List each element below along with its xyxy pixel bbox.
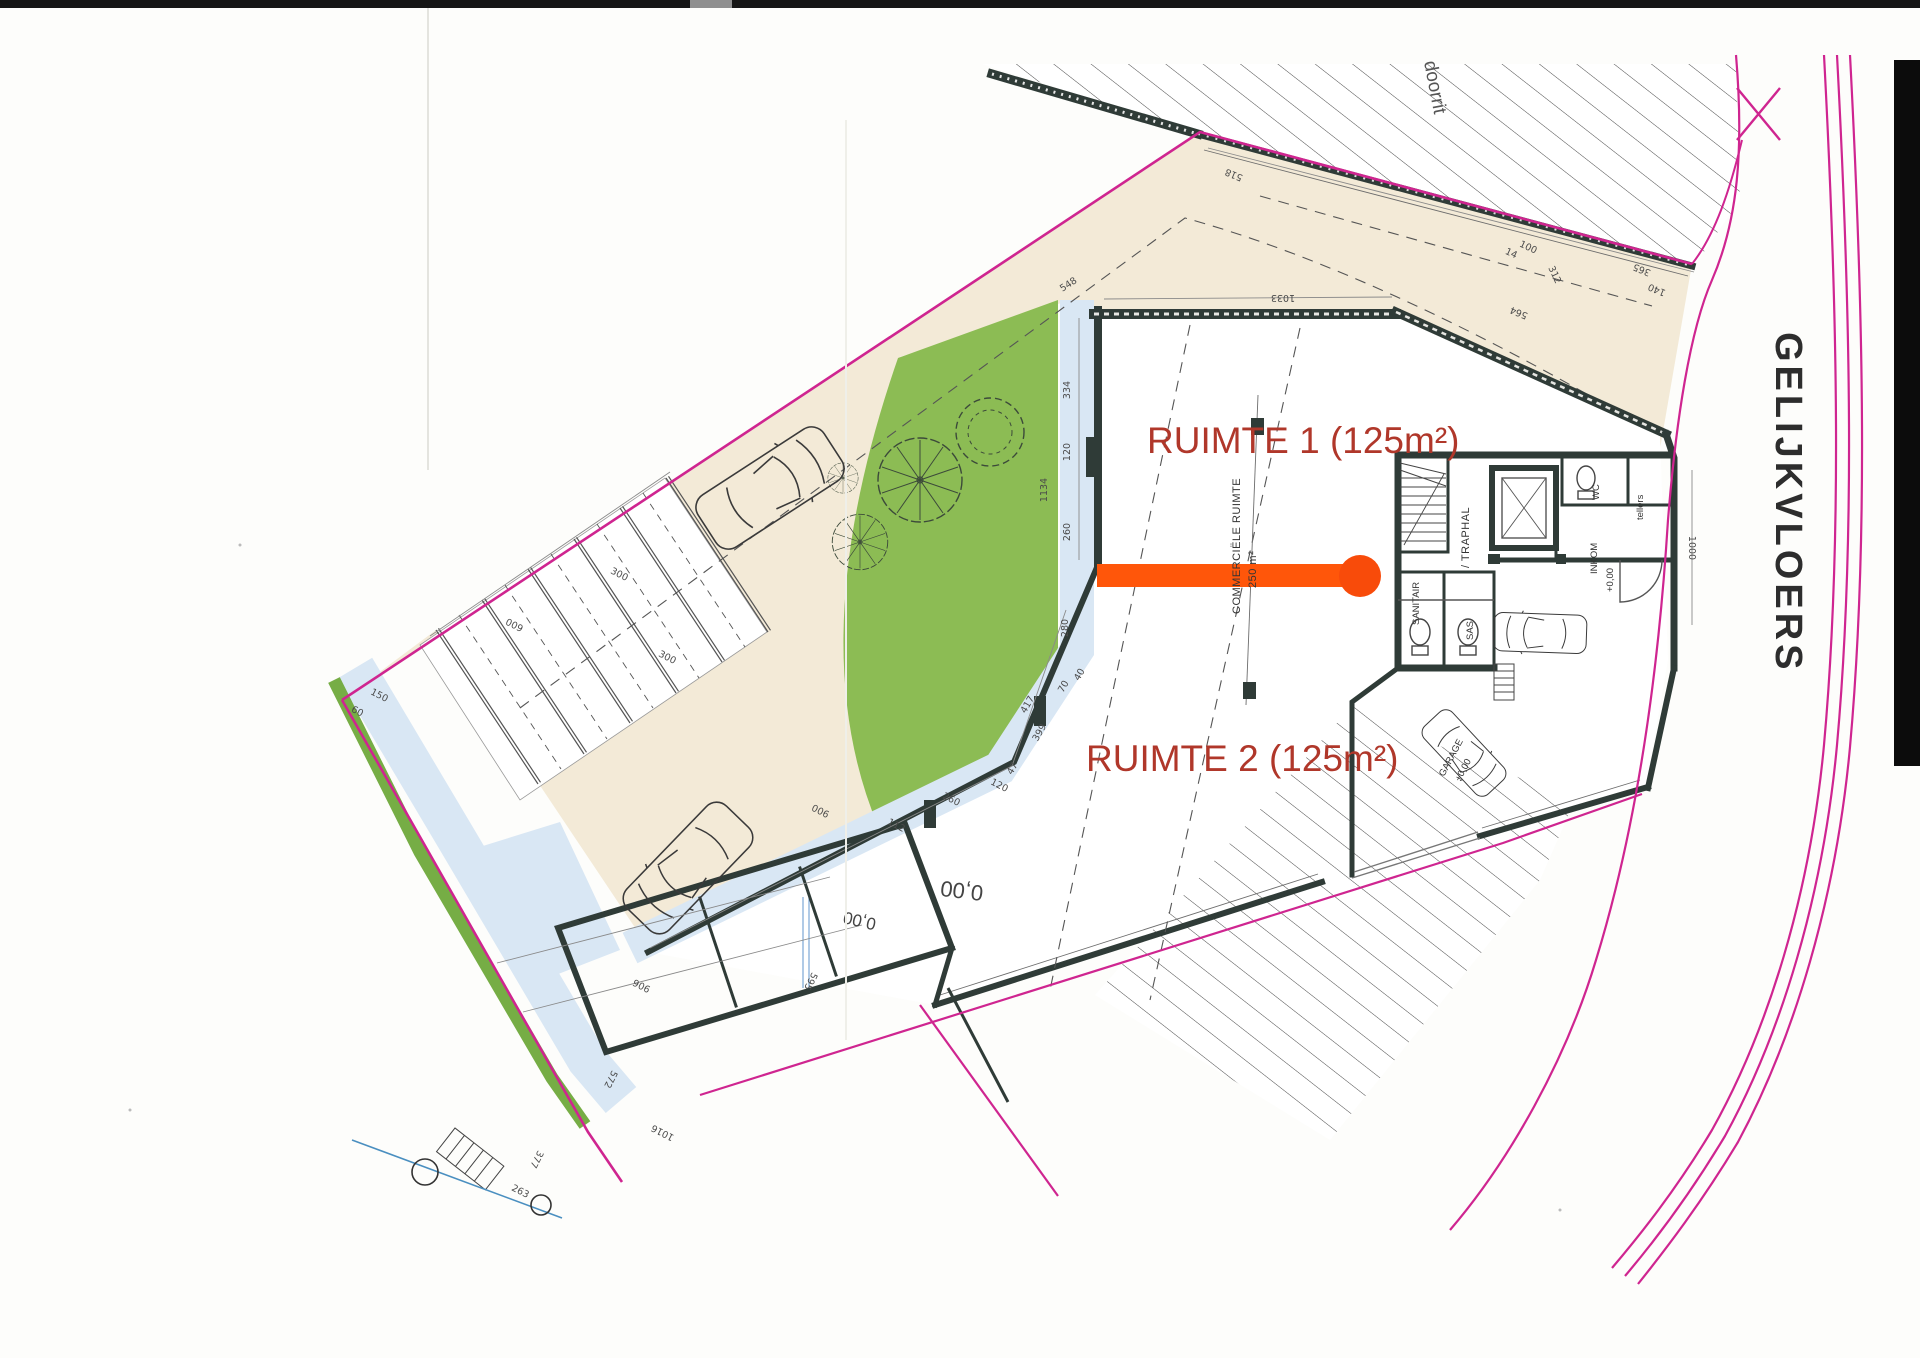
site-ground-fills — [334, 132, 1692, 1125]
dim-label: 334 — [1062, 381, 1073, 399]
label-inkom-level: +0,00 — [1605, 568, 1616, 592]
dim-label: 280 — [1060, 619, 1071, 637]
dim-label: 377 — [527, 1149, 545, 1170]
page-title: GELIJKVLOERS — [1767, 332, 1809, 674]
label-sanitair: SANITAIR — [1411, 582, 1422, 625]
dim-label: 260 — [1062, 523, 1073, 541]
label-sas: SAS — [1465, 621, 1476, 640]
survey-point-icon — [531, 1195, 551, 1215]
survey-point-icon — [412, 1159, 438, 1185]
door-block — [1086, 437, 1102, 477]
dim-label: 1033 — [1271, 292, 1295, 303]
label-inkom: INKOM — [1589, 543, 1600, 574]
orange-divider-dot — [1339, 555, 1381, 597]
dim-label: 1016 — [650, 1122, 677, 1143]
label-tellers: tellers — [1635, 494, 1646, 520]
scanned-floor-plan-sheet: 1033 548 518 100 14 312 564 365 140 1000… — [0, 0, 1920, 1358]
label-ruimte-1: RUIMTE 1 (125m²) — [1147, 420, 1459, 461]
label-level-rear: 0,00 — [939, 876, 985, 906]
orange-divider-bar — [1097, 564, 1347, 587]
label-ruimte-2: RUIMTE 2 (125m²) — [1086, 738, 1398, 779]
label-wc: WC — [1591, 484, 1602, 500]
label-commercial-space: COMMERCIËLE RUIMTE — [1231, 478, 1243, 614]
dim-label: 906 — [631, 976, 652, 994]
dim-label: 263 — [510, 1183, 531, 1201]
dim-label: 120 — [1062, 443, 1073, 461]
exterior-stairs — [437, 1128, 504, 1190]
survey-marks — [352, 1140, 562, 1218]
floor-plan-canvas: 1033 548 518 100 14 312 564 365 140 1000… — [0, 0, 1920, 1358]
dim-label: 1000 — [1686, 536, 1697, 560]
label-traphal: / TRAPHAL — [1460, 507, 1472, 568]
boundary-cross-icon — [1737, 88, 1780, 140]
label-commercial-area: 250 m² — [1247, 551, 1259, 588]
dim-label: 1134 — [1039, 478, 1050, 502]
